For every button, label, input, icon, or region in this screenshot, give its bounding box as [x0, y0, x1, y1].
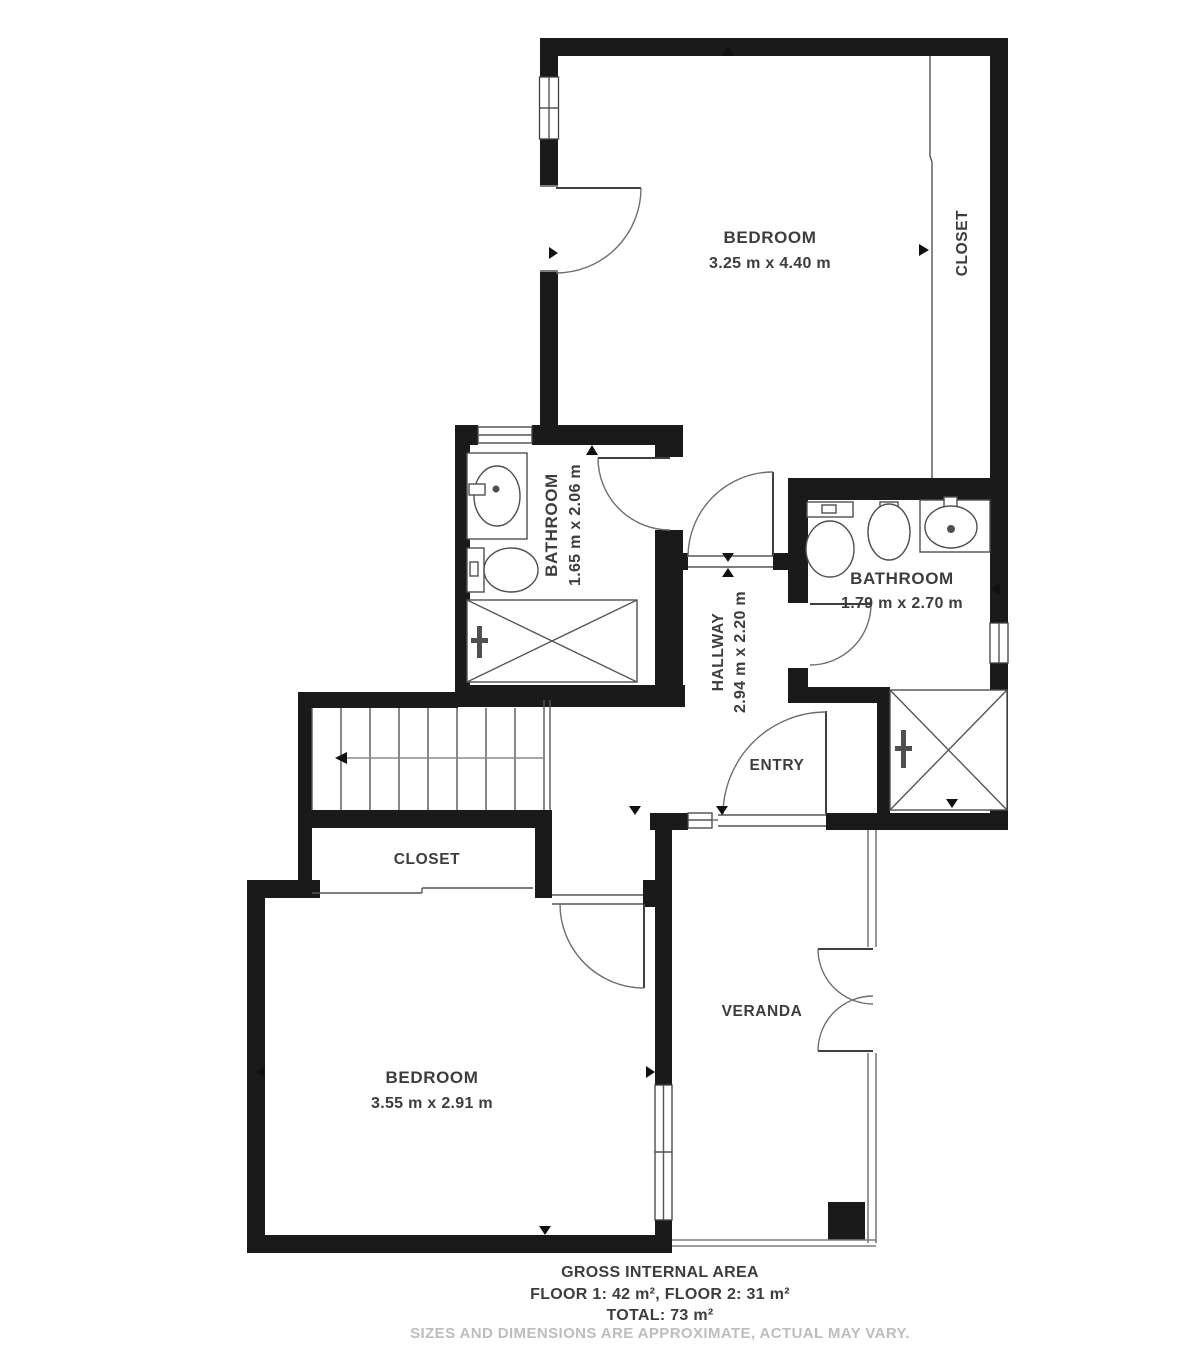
- wall-segment: [788, 478, 1008, 500]
- bedroom2-dims: 3.55 m x 2.91 m: [371, 1095, 493, 1112]
- bedroom2-label: BEDROOM: [386, 1068, 479, 1087]
- bathroom1-dims: 1.65 m x 2.06 m: [567, 464, 584, 586]
- veranda-label: VERANDA: [722, 1003, 803, 1020]
- hallway-label: HALLWAY: [710, 613, 727, 692]
- wall-segment: [877, 687, 890, 830]
- bedroom1-dims: 3.25 m x 4.40 m: [709, 255, 831, 272]
- bedroom1-label: BEDROOM: [724, 228, 817, 247]
- wall-segment: [247, 880, 265, 1253]
- wall-segment: [788, 687, 890, 703]
- shower-symbol: [467, 600, 637, 682]
- hallway-dims: 2.94 m x 2.20 m: [732, 591, 749, 713]
- wall-segment: [247, 880, 320, 898]
- wall-segment: [247, 1235, 672, 1253]
- sink-symbol: [920, 497, 990, 552]
- wall-segment: [676, 553, 688, 570]
- floor-plan-drawing: BEDROOM 3.25 m x 4.40 m CLOSET BATHROOM …: [0, 0, 1200, 1345]
- wall-segment: [298, 692, 458, 708]
- wall-segment: [298, 692, 312, 895]
- wall-segment: [540, 38, 1008, 56]
- floor-areas-text: FLOOR 1: 42 m², FLOOR 2: 31 m²: [530, 1286, 790, 1303]
- bathroom1-label: BATHROOM: [542, 473, 561, 577]
- disclaimer-text: SIZES AND DIMENSIONS ARE APPROXIMATE, AC…: [410, 1325, 910, 1342]
- shower-symbol: [890, 690, 1007, 810]
- window-bathroom1-top: [478, 427, 532, 443]
- wall-segment: [826, 813, 1008, 830]
- wall-segment: [535, 810, 552, 898]
- wall-segment: [655, 820, 672, 1085]
- total-area-text: TOTAL: 73 m²: [606, 1307, 713, 1324]
- wall-segment: [298, 810, 552, 828]
- wall-segment: [540, 137, 558, 185]
- toilet-symbol: [467, 548, 538, 592]
- bathroom2-dims: 1.79 m x 2.70 m: [841, 595, 963, 612]
- window-bedroom1-left: [540, 77, 559, 139]
- veranda-post: [828, 1202, 865, 1240]
- window-entry-top: [688, 813, 712, 828]
- floor-plan-page: BEDROOM 3.25 m x 4.40 m CLOSET BATHROOM …: [0, 0, 1200, 1345]
- window-bathroom2-right: [990, 623, 1008, 663]
- sink-symbol: [467, 453, 527, 539]
- wall-segment: [655, 430, 683, 457]
- entry-label: ENTRY: [750, 757, 805, 774]
- wall-segment: [455, 685, 685, 707]
- wall-segment: [540, 38, 558, 77]
- bathroom2-label: BATHROOM: [850, 569, 954, 588]
- gross-internal-area-title: GROSS INTERNAL AREA: [561, 1264, 759, 1281]
- wall-segment: [540, 272, 558, 445]
- wall-segment: [773, 553, 788, 570]
- window-bedroom2-right: [655, 1085, 672, 1220]
- toilet-symbol: [806, 502, 854, 577]
- wall-segment: [788, 500, 808, 603]
- closet2-label: CLOSET: [394, 851, 460, 868]
- wall-segment: [990, 38, 1008, 623]
- closet1-label: CLOSET: [954, 210, 971, 276]
